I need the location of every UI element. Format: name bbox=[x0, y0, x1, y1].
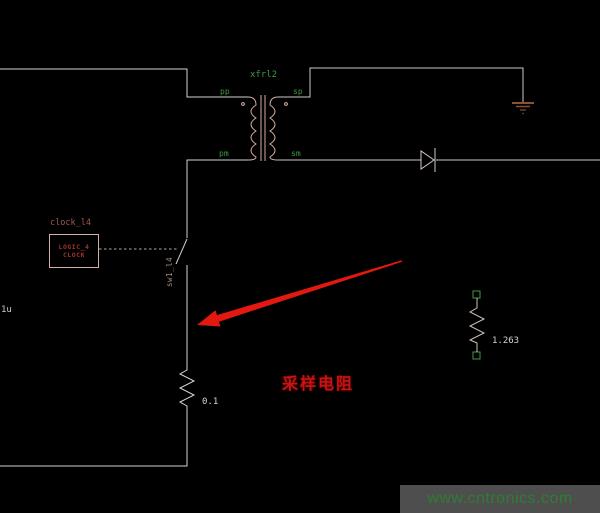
watermark-band: www.cntronics.com bbox=[400, 485, 600, 513]
load-resistor-value: 1.263 bbox=[492, 337, 519, 346]
load-resistor-terminal-top bbox=[473, 291, 480, 298]
wire-bottom-return bbox=[0, 410, 187, 466]
transformer-secondary-winding bbox=[270, 97, 278, 160]
red-arrow-annotation bbox=[197, 260, 402, 326]
transformer-phase-dot-primary bbox=[242, 103, 245, 106]
transformer-pin-pp-label: pp bbox=[220, 88, 230, 96]
diode-symbol bbox=[421, 148, 435, 172]
transformer-symbol bbox=[242, 95, 288, 161]
transformer-primary-winding bbox=[248, 97, 256, 160]
sense-resistor-value: 0.1 bbox=[202, 398, 218, 407]
wire-top-left bbox=[0, 69, 248, 97]
load-resistor-symbol bbox=[470, 291, 484, 359]
wire-sp-to-ground bbox=[278, 68, 523, 102]
switch-blade bbox=[176, 239, 187, 264]
schematic-canvas: xfrl2 pp sp pm sm clock_l4 LOGIC_4 CLOCK… bbox=[0, 0, 600, 513]
clock-box-line1: LOGIC_4 bbox=[59, 244, 90, 251]
clock-box-line2: CLOCK bbox=[63, 252, 85, 259]
sense-resistor-symbol bbox=[180, 366, 194, 410]
ground-symbol bbox=[512, 103, 534, 114]
watermark-text: www.cntronics.com bbox=[427, 490, 572, 508]
wire-pm-to-switch bbox=[187, 160, 248, 238]
clock-source-ref-label: clock_l4 bbox=[50, 219, 91, 228]
transformer-pin-sp-label: sp bbox=[293, 88, 303, 96]
transformer-phase-dot-secondary bbox=[285, 103, 288, 106]
transformer-ref-label: xfrl2 bbox=[250, 71, 277, 80]
transformer-pin-sm-label: sm bbox=[291, 150, 301, 158]
load-resistor-terminal-bottom bbox=[473, 352, 480, 359]
clock-source-box: LOGIC_4 CLOCK bbox=[49, 234, 99, 268]
diode-anode-triangle bbox=[421, 151, 434, 169]
edge-component-value: 1u bbox=[1, 306, 12, 315]
load-resistor-zigzag bbox=[470, 298, 484, 352]
transformer-pin-pm-label: pm bbox=[219, 150, 229, 158]
sampling-resistor-annotation: 采样电阻 bbox=[282, 370, 354, 394]
secondary-wires bbox=[278, 68, 600, 160]
switch-ref-label: sw1_l4 bbox=[165, 257, 174, 287]
